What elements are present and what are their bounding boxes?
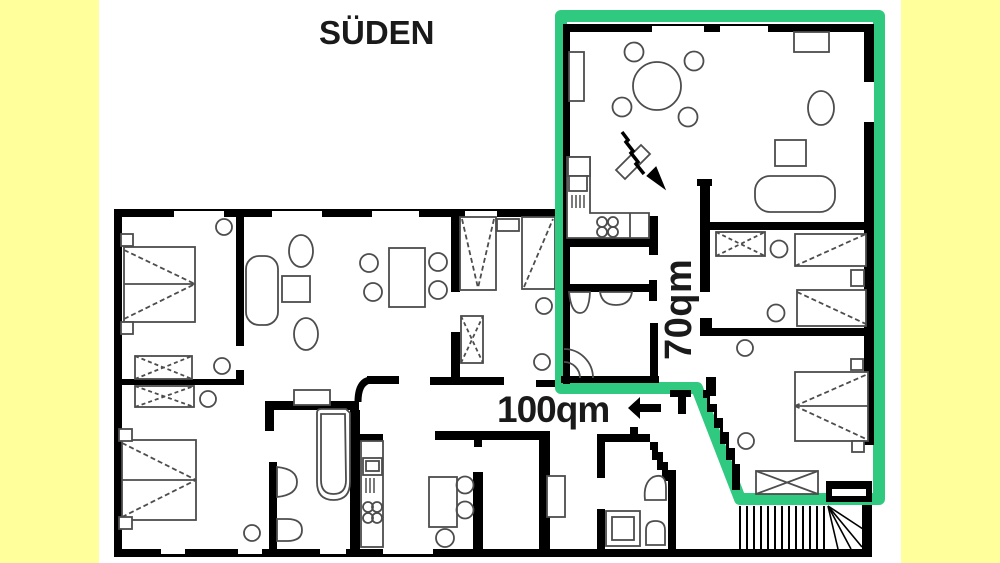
svg-text:SÜDEN: SÜDEN <box>319 14 435 51</box>
svg-text:100qm: 100qm <box>497 389 609 430</box>
svg-text:70qm: 70qm <box>658 259 700 360</box>
